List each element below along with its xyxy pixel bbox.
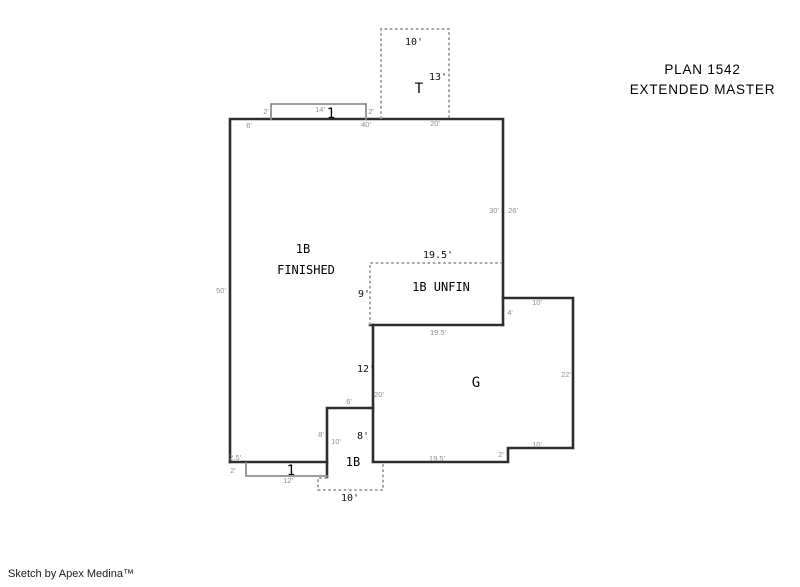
unfin-dashed-outline [370,263,502,325]
right-wall-inner-dim: 30' [489,206,499,215]
dashed-layer [318,29,502,490]
bay-jog-dim: 6' [346,397,352,406]
unfin-bottom-dim: 19.5' [430,328,447,337]
unfin-height-dim: 9' [358,289,370,300]
garage-bottom-dim: 19.5' [429,454,446,463]
rear-porch-width-dim: 12' [283,476,293,485]
front-door-marker: 1 [327,106,335,122]
garage-left-dim: 20' [374,390,384,399]
front-porch-right-dim: 2' [368,107,374,116]
main-room-label: 1B [296,242,310,256]
rear-patio-width-dim: 10' [341,493,359,504]
labels-layer: 10'13'T2'14'12'6'40'20'30'26'50'1BFINISH… [216,37,571,504]
garage-step-down-dim: 2' [498,450,504,459]
plan-variant: EXTENDED MASTER [600,80,800,100]
floor-plan-sketch: 10'13'T2'14'12'6'40'20'30'26'50'1BFINISH… [0,0,800,587]
garage-room-label: G [472,375,480,391]
unfin-room-label: 1B UNFIN [412,280,470,294]
rear-porch-depth-dim: 2' [230,466,236,475]
right-wall-outer-dim: 26' [508,206,518,215]
tuck-under-width-dim: 10' [405,37,423,48]
garage-left-upper-dim: 12' [357,364,375,375]
unfin-width-dim: 19.5' [423,250,453,261]
left-wall-dim: 50' [216,286,226,295]
front-porch-width-dim: 14' [315,105,325,114]
main-room-sublabel: FINISHED [277,263,335,277]
plan-title: PLAN 1542 EXTENDED MASTER [600,60,800,100]
garage-bottom-right-dim: 10' [532,440,542,449]
top-wall-left-dim: 6' [246,121,252,130]
front-porch-left-dim: 2' [263,107,269,116]
garage-top-dim: 10' [532,298,542,307]
walls-layer [230,119,573,477]
porch-layer [246,104,366,476]
sketch-credit: Sketch by Apex Medina™ [8,568,134,580]
bay-left-inner-dim: 10' [331,437,341,446]
garage-step-dim: 4' [507,308,513,317]
plan-number: PLAN 1542 [600,60,800,80]
top-wall-right-dim: 20' [430,119,440,128]
top-wall-mid-dim: 40' [361,120,371,129]
garage-right-dim: 22' [561,370,571,379]
bay-room-label: 1B [346,455,360,469]
tuck-under-room-label: T [415,81,424,97]
tuck-under-height-dim: 13' [429,72,447,83]
bay-right-dim: 8' [357,431,369,442]
rear-wall-inset-dim: 2.5' [229,453,241,462]
bay-left-outer-dim: 8' [318,430,324,439]
